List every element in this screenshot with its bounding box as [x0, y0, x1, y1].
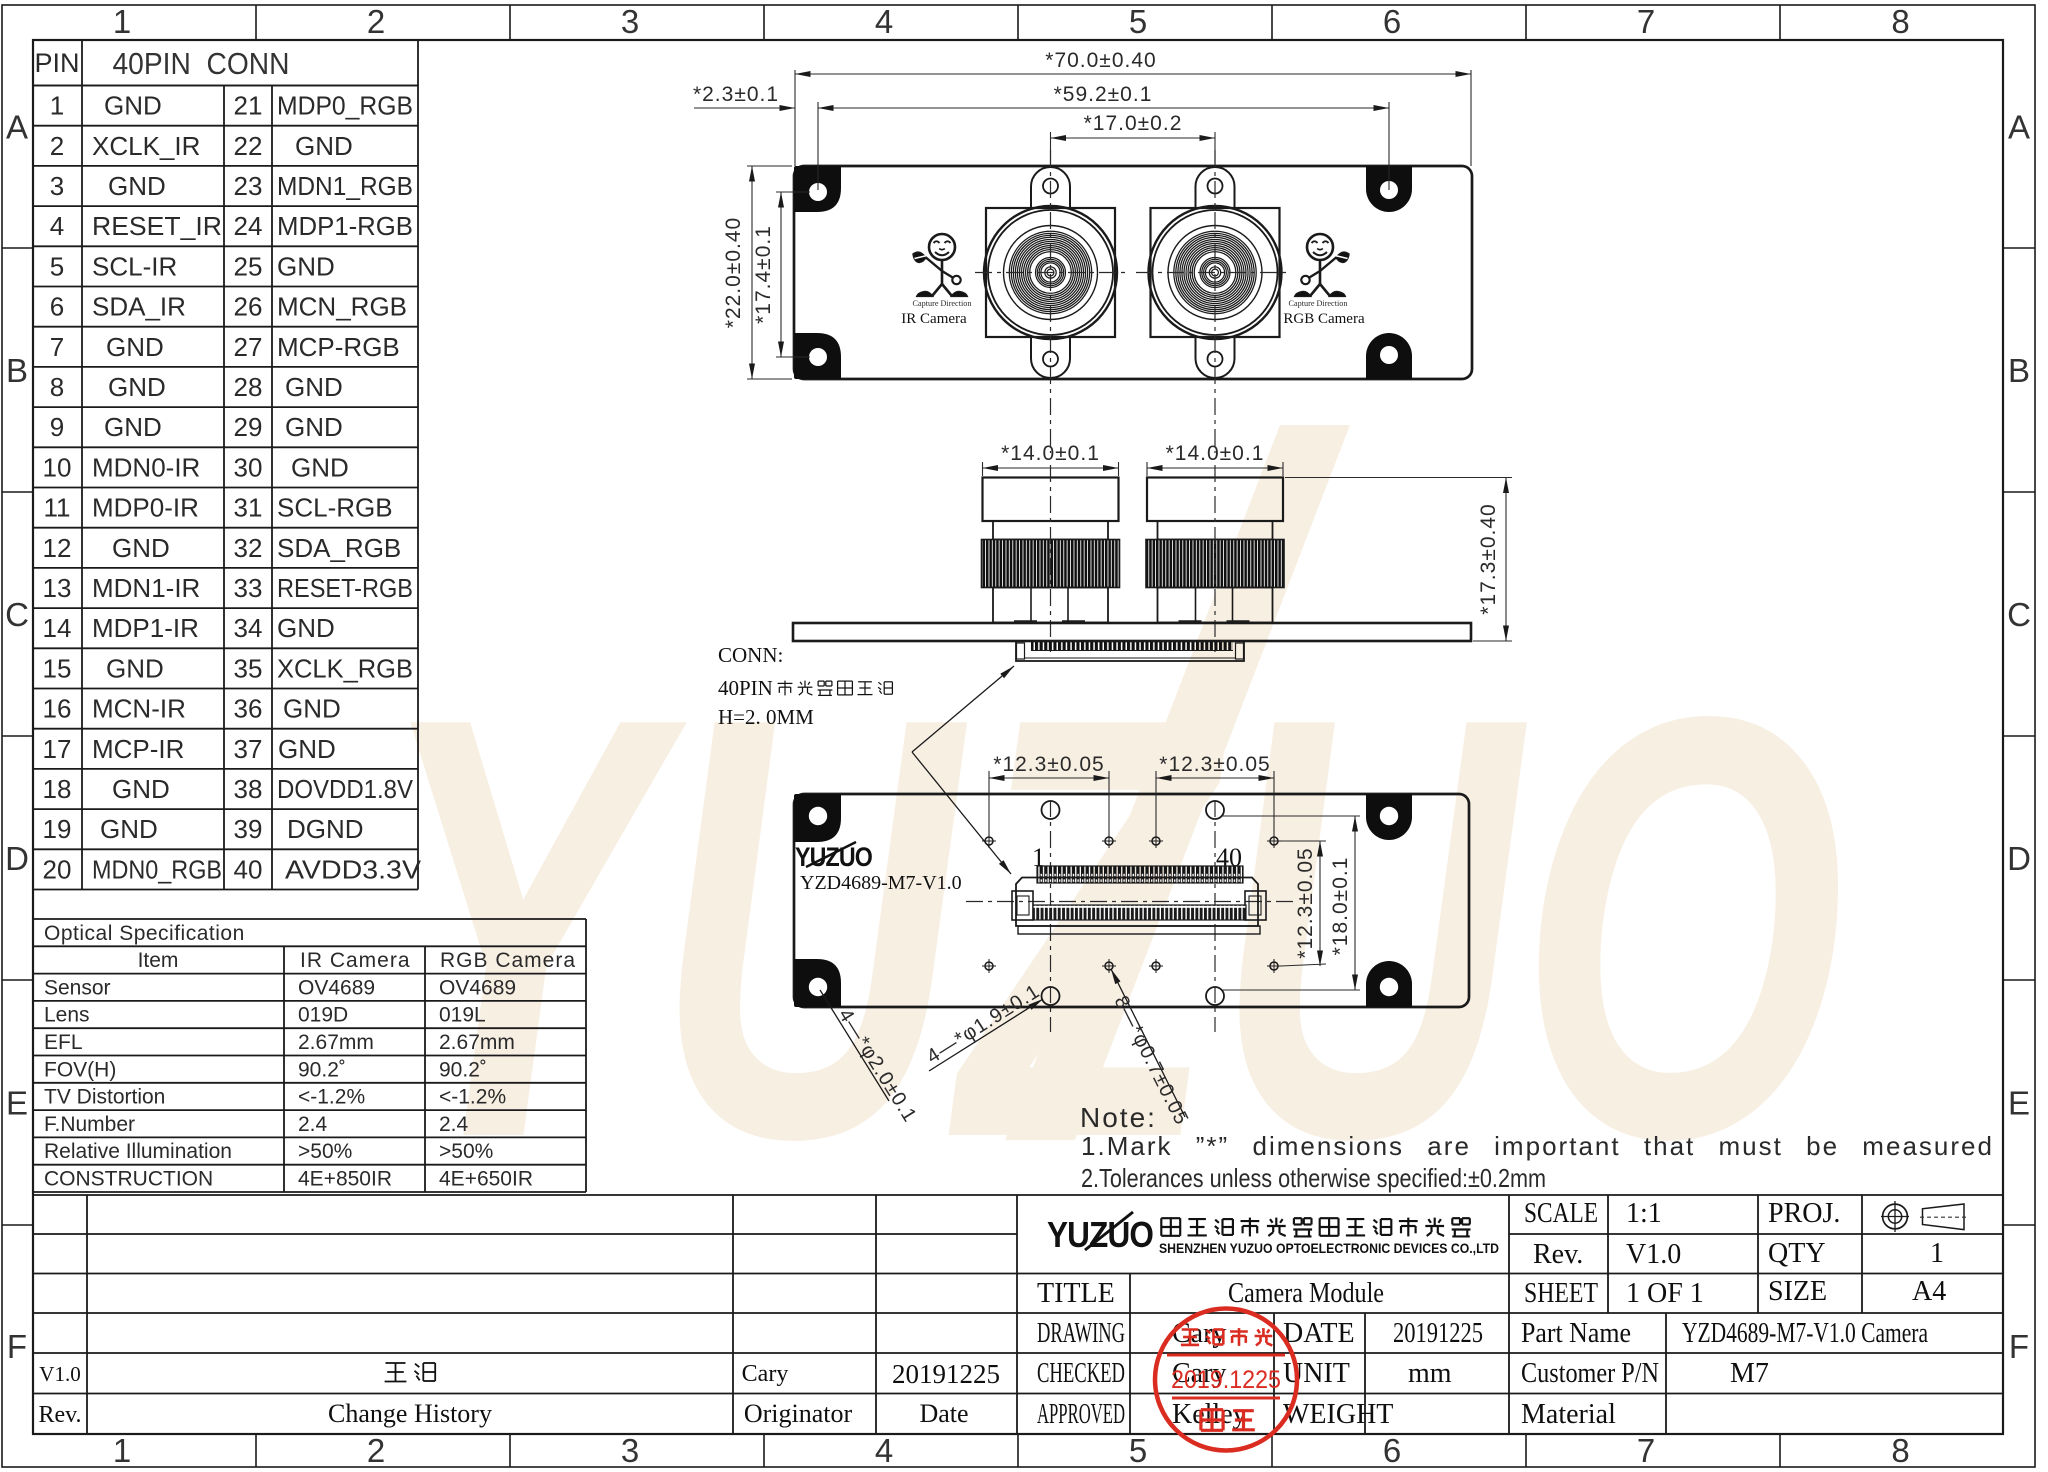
svg-text:3: 3: [621, 3, 639, 40]
svg-text:*17.3±0.40: *17.3±0.40: [1477, 503, 1500, 614]
svg-text:2: 2: [367, 3, 385, 40]
svg-text:28: 28: [234, 372, 263, 402]
svg-text:F: F: [2009, 1328, 2029, 1365]
svg-text:MCP-IR: MCP-IR: [92, 734, 184, 764]
svg-text:4: 4: [875, 1432, 893, 1469]
svg-text:AVDD3.3V: AVDD3.3V: [285, 854, 422, 884]
svg-text:C: C: [2007, 596, 2031, 633]
svg-text:SCALE: SCALE: [1524, 1198, 1598, 1229]
svg-text:Date: Date: [919, 1399, 968, 1428]
svg-text:DRAWING: DRAWING: [1037, 1318, 1125, 1349]
svg-text:3: 3: [621, 1432, 639, 1469]
svg-text:18: 18: [43, 774, 72, 804]
svg-text:SHENZHEN YUZUO OPTOELECTRONIC: SHENZHEN YUZUO OPTOELECTRONIC DEVICES CO…: [1159, 1241, 1499, 1256]
svg-text:*2.3±0.1: *2.3±0.1: [693, 83, 779, 106]
svg-text:TITLE: TITLE: [1037, 1278, 1115, 1309]
svg-text:SHEET: SHEET: [1524, 1278, 1598, 1309]
svg-text:CONN:: CONN:: [718, 643, 783, 667]
svg-text:mm: mm: [1408, 1358, 1452, 1389]
svg-text:Rev.: Rev.: [1533, 1239, 1583, 1270]
svg-text:DOVDD1.8V: DOVDD1.8V: [277, 774, 414, 804]
svg-text:PROJ.: PROJ.: [1768, 1198, 1840, 1229]
svg-text:E: E: [2008, 1085, 2030, 1122]
svg-text:GND: GND: [104, 91, 162, 121]
svg-text:3: 3: [50, 171, 64, 201]
svg-text:Customer P/N: Customer P/N: [1521, 1358, 1659, 1389]
svg-text:2.67mm: 2.67mm: [298, 1031, 374, 1054]
svg-text:>50%: >50%: [439, 1140, 493, 1163]
svg-text:E: E: [6, 1085, 28, 1122]
svg-text:32: 32: [234, 533, 263, 563]
svg-text:GND: GND: [295, 131, 353, 161]
svg-text:GND: GND: [108, 372, 166, 402]
svg-text:1: 1: [113, 1432, 131, 1469]
svg-text:MDN0_RGB: MDN0_RGB: [92, 854, 222, 884]
svg-text:35: 35: [234, 653, 263, 683]
svg-text:*59.2±0.1: *59.2±0.1: [1054, 83, 1153, 106]
svg-text:2.67mm: 2.67mm: [439, 1031, 515, 1054]
svg-text:CONSTRUCTION: CONSTRUCTION: [44, 1168, 213, 1191]
svg-text:31: 31: [234, 493, 263, 523]
svg-text:B: B: [6, 352, 28, 389]
svg-text:16: 16: [43, 694, 72, 724]
svg-text:GND: GND: [100, 814, 158, 844]
svg-text:SCL-RGB: SCL-RGB: [277, 493, 393, 523]
svg-text:GND: GND: [112, 533, 170, 563]
svg-text:F: F: [7, 1328, 27, 1365]
svg-text:MCP-RGB: MCP-RGB: [277, 332, 400, 362]
svg-text:6: 6: [1383, 3, 1401, 40]
svg-text:21: 21: [234, 91, 263, 121]
svg-text:GND: GND: [112, 774, 170, 804]
svg-text:Part Name: Part Name: [1521, 1318, 1631, 1349]
svg-text:MDN0-IR: MDN0-IR: [92, 452, 200, 482]
svg-text:RESET_IR: RESET_IR: [92, 211, 222, 241]
svg-text:B: B: [2008, 352, 2030, 389]
svg-text:Originator: Originator: [744, 1399, 853, 1428]
svg-text:MDP0_RGB: MDP0_RGB: [277, 91, 413, 121]
svg-text:6: 6: [1383, 1432, 1401, 1469]
svg-text:IR Camera: IR Camera: [901, 311, 967, 327]
svg-text:8: 8: [1891, 1432, 1909, 1469]
svg-text:30: 30: [234, 452, 263, 482]
svg-text:Note:: Note:: [1080, 1102, 1157, 1133]
svg-text:6: 6: [50, 292, 64, 322]
svg-text:YUZUO: YUZUO: [1047, 1214, 1153, 1255]
svg-text:39: 39: [234, 814, 263, 844]
svg-text:7: 7: [50, 332, 64, 362]
svg-text:IR Camera: IR Camera: [300, 949, 411, 972]
svg-text:8: 8: [1891, 3, 1909, 40]
svg-text:29: 29: [234, 412, 263, 442]
svg-text:A4: A4: [1912, 1276, 1946, 1307]
svg-text:4E+650IR: 4E+650IR: [439, 1168, 533, 1191]
svg-text:D: D: [5, 840, 29, 877]
svg-text:TV Distortion: TV Distortion: [44, 1086, 165, 1109]
svg-text:PIN: PIN: [34, 48, 79, 78]
svg-text:Lens: Lens: [44, 1004, 90, 1027]
svg-text:Capture Direction: Capture Direction: [913, 299, 972, 308]
svg-text:*14.0±0.1: *14.0±0.1: [1166, 442, 1265, 465]
svg-text:DGND: DGND: [287, 814, 364, 844]
svg-text:QTY: QTY: [1768, 1238, 1826, 1269]
svg-text:C: C: [5, 596, 29, 633]
svg-text:F.Number: F.Number: [44, 1113, 135, 1136]
svg-text:20: 20: [43, 854, 72, 884]
svg-text:GND: GND: [291, 452, 349, 482]
svg-text:*22.0±0.40: *22.0±0.40: [722, 217, 745, 328]
svg-text:2: 2: [50, 131, 64, 161]
svg-text:MCN-IR: MCN-IR: [92, 694, 186, 724]
svg-text:90.2˚: 90.2˚: [439, 1058, 487, 1081]
svg-text:MDP1-RGB: MDP1-RGB: [277, 211, 413, 241]
svg-text:M7: M7: [1730, 1358, 1769, 1389]
svg-text:MDN1-IR: MDN1-IR: [92, 573, 200, 603]
svg-text:Material: Material: [1521, 1399, 1616, 1430]
svg-text:10: 10: [43, 452, 72, 482]
svg-text:20191225: 20191225: [1393, 1318, 1483, 1349]
svg-text:1.Mark ”*” dimensions are impo: 1.Mark ”*” dimensions are important that…: [1081, 1131, 1992, 1161]
svg-text:<-1.2%: <-1.2%: [298, 1086, 365, 1109]
svg-text:1: 1: [1930, 1238, 1944, 1269]
svg-text:1: 1: [50, 91, 64, 121]
svg-text:26: 26: [234, 292, 263, 322]
svg-text:22: 22: [234, 131, 263, 161]
svg-text:*17.0±0.2: *17.0±0.2: [1084, 112, 1183, 135]
svg-text:11: 11: [44, 493, 71, 523]
svg-text:90.2˚: 90.2˚: [298, 1058, 346, 1081]
svg-text:13: 13: [43, 573, 72, 603]
svg-text:GND: GND: [285, 412, 343, 442]
svg-text:7: 7: [1637, 3, 1655, 40]
svg-text:GND: GND: [278, 734, 336, 764]
svg-text:Change History: Change History: [328, 1399, 492, 1428]
svg-text:40: 40: [234, 854, 263, 884]
svg-text:YZD4689-M7-V1.0 Camera: YZD4689-M7-V1.0 Camera: [1682, 1318, 1928, 1349]
svg-text:RESET-RGB: RESET-RGB: [277, 573, 413, 603]
svg-text:V1.0: V1.0: [1626, 1239, 1681, 1270]
svg-text:23: 23: [234, 171, 263, 201]
svg-text:4: 4: [50, 211, 64, 241]
svg-text:4: 4: [875, 3, 893, 40]
svg-text:EFL: EFL: [44, 1031, 83, 1054]
svg-text:GND: GND: [106, 332, 164, 362]
svg-text:*12.3±0.05: *12.3±0.05: [993, 753, 1104, 776]
svg-text:XCLK_RGB: XCLK_RGB: [277, 653, 413, 683]
svg-text:*18.0±0.1: *18.0±0.1: [1329, 857, 1352, 956]
svg-text:OV4689: OV4689: [298, 976, 375, 999]
svg-text:27: 27: [234, 332, 263, 362]
svg-text:SCL-IR: SCL-IR: [92, 251, 177, 281]
svg-text:1:1: 1:1: [1626, 1198, 1662, 1229]
svg-text:MDN1_RGB: MDN1_RGB: [277, 171, 413, 201]
svg-text:Relative Illumination: Relative Illumination: [44, 1140, 232, 1163]
svg-text:A: A: [2008, 109, 2030, 146]
svg-text:SDA_RGB: SDA_RGB: [277, 533, 401, 563]
svg-text:24: 24: [234, 211, 263, 241]
svg-text:MCN_RGB: MCN_RGB: [277, 292, 407, 322]
svg-text:7: 7: [1637, 1432, 1655, 1469]
svg-text:GND: GND: [285, 372, 343, 402]
svg-text:34: 34: [234, 613, 263, 643]
svg-text:40PIN CONN: 40PIN CONN: [113, 46, 290, 81]
svg-text:36: 36: [234, 694, 263, 724]
svg-text:Kelley: Kelley: [1172, 1399, 1247, 1430]
svg-text:5: 5: [50, 251, 64, 281]
svg-text:5: 5: [1129, 3, 1147, 40]
svg-text:*17.4±0.1: *17.4±0.1: [752, 225, 775, 324]
svg-text:2.4: 2.4: [439, 1113, 469, 1136]
svg-text:GND: GND: [283, 694, 341, 724]
svg-text:*12.3±0.05: *12.3±0.05: [1159, 753, 1270, 776]
svg-text:Camera Module: Camera Module: [1228, 1278, 1384, 1309]
svg-text:Optical Specification: Optical Specification: [44, 922, 245, 945]
svg-text:1: 1: [113, 3, 131, 40]
svg-text:GND: GND: [106, 653, 164, 683]
svg-text:Cary: Cary: [742, 1361, 789, 1387]
svg-text:YZD4689-M7-V1.0: YZD4689-M7-V1.0: [800, 872, 962, 894]
svg-text:*14.0±0.1: *14.0±0.1: [1001, 442, 1100, 465]
svg-text:DATE: DATE: [1283, 1318, 1355, 1349]
svg-text:33: 33: [234, 573, 263, 603]
svg-text:MDP0-IR: MDP0-IR: [92, 493, 199, 523]
svg-text:Capture Direction: Capture Direction: [1289, 299, 1348, 308]
svg-text:FOV(H): FOV(H): [44, 1058, 116, 1081]
svg-text:*70.0±0.40: *70.0±0.40: [1045, 49, 1156, 72]
svg-text:20191225: 20191225: [892, 1359, 1000, 1389]
svg-text:>50%: >50%: [298, 1140, 352, 1163]
svg-text:19: 19: [43, 814, 72, 844]
svg-text:GND: GND: [277, 613, 335, 643]
svg-text:Item: Item: [138, 949, 179, 972]
svg-text:H=2. 0MM: H=2. 0MM: [718, 705, 814, 729]
svg-text:12: 12: [43, 533, 72, 563]
svg-text:SIZE: SIZE: [1768, 1276, 1827, 1307]
svg-text:XCLK_IR: XCLK_IR: [92, 131, 200, 161]
svg-text:Rev.: Rev.: [38, 1402, 81, 1428]
svg-text:OV4689: OV4689: [439, 976, 516, 999]
svg-text:15: 15: [43, 653, 72, 683]
svg-text:GND: GND: [108, 171, 166, 201]
svg-text:A: A: [6, 109, 28, 146]
svg-text:Sensor: Sensor: [44, 976, 111, 999]
svg-text:17: 17: [43, 734, 72, 764]
svg-text:2019.1225: 2019.1225: [1171, 1366, 1281, 1394]
svg-text:WEIGHT: WEIGHT: [1283, 1399, 1393, 1430]
svg-text:019D: 019D: [298, 1004, 348, 1027]
svg-text:D: D: [2007, 840, 2031, 877]
svg-text:MDP1-IR: MDP1-IR: [92, 613, 199, 643]
svg-text:*12.3±0.05: *12.3±0.05: [1294, 847, 1317, 958]
svg-text:38: 38: [234, 774, 263, 804]
svg-text:GND: GND: [104, 412, 162, 442]
svg-text:2.Tolerances unless otherwise: 2.Tolerances unless otherwise specified:…: [1081, 1163, 1546, 1193]
svg-text:RGB Camera: RGB Camera: [1283, 311, 1365, 327]
svg-text:9: 9: [50, 412, 64, 442]
svg-text:1 OF 1: 1 OF 1: [1626, 1278, 1704, 1309]
svg-text:RGB Camera: RGB Camera: [440, 949, 576, 972]
svg-text:019L: 019L: [439, 1004, 486, 1027]
svg-text:GND: GND: [277, 251, 335, 281]
svg-text:CHECKED: CHECKED: [1037, 1358, 1125, 1389]
svg-text:2.4: 2.4: [298, 1113, 328, 1136]
svg-text:40PIN: 40PIN: [718, 676, 773, 700]
svg-text:APPROVED: APPROVED: [1037, 1399, 1125, 1430]
svg-text:37: 37: [234, 734, 263, 764]
svg-text:V1.0: V1.0: [39, 1362, 80, 1386]
svg-text:14: 14: [43, 613, 72, 643]
svg-text:SDA_IR: SDA_IR: [92, 292, 186, 322]
svg-text:<-1.2%: <-1.2%: [439, 1086, 506, 1109]
svg-text:8: 8: [50, 372, 64, 402]
svg-text:2: 2: [367, 1432, 385, 1469]
svg-text:4E+850IR: 4E+850IR: [298, 1168, 392, 1191]
svg-text:5: 5: [1129, 1432, 1147, 1469]
svg-text:25: 25: [234, 251, 263, 281]
